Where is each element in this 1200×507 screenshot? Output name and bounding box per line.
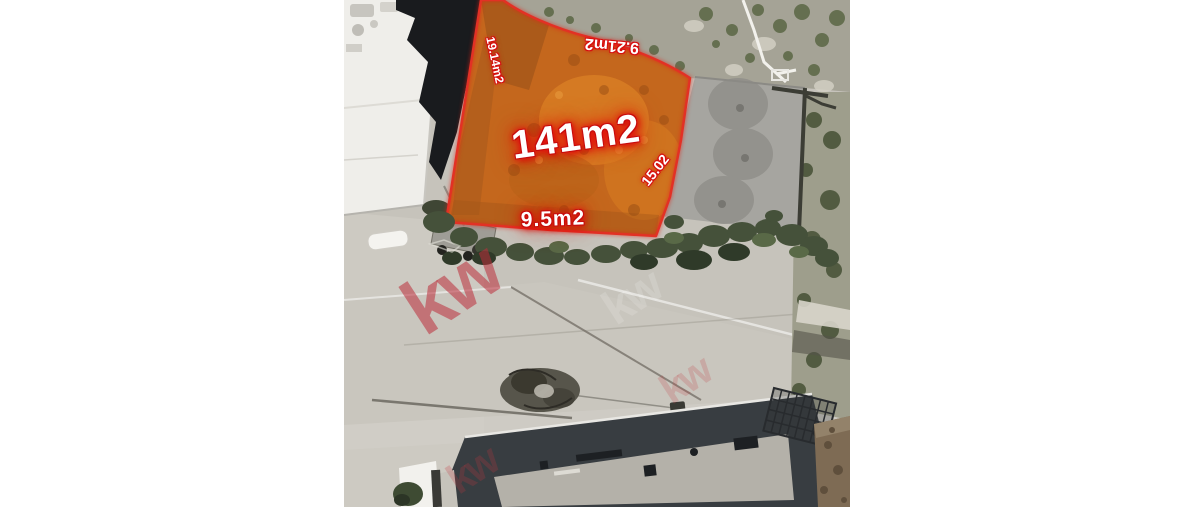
aerial-photo-scene (344, 0, 850, 507)
aerial-photo: 141m2 19.14m2 9.21m2 15.02 9.5m2 kw kw k… (344, 0, 850, 507)
listing-page: 141m2 19.14m2 9.21m2 15.02 9.5m2 kw kw k… (0, 0, 1200, 507)
bottom-left-structure (393, 461, 442, 507)
dirt-area (814, 416, 850, 507)
debris-pile (500, 368, 580, 412)
